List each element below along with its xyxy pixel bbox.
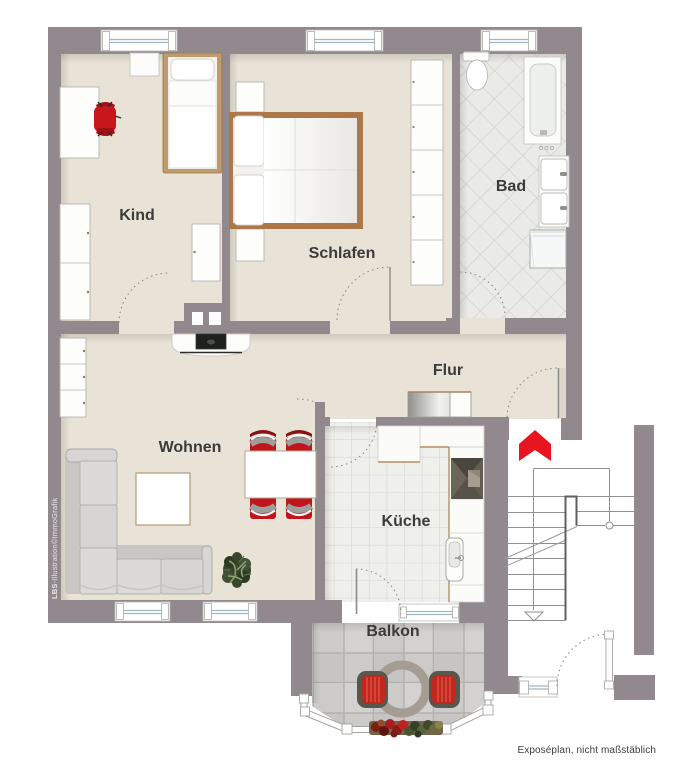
svg-text:Bad: Bad <box>496 178 526 195</box>
svg-text:Küche: Küche <box>382 513 431 530</box>
svg-text:Flur: Flur <box>433 362 463 379</box>
svg-text:Balkon: Balkon <box>366 623 419 640</box>
svg-text:Kind: Kind <box>119 207 155 224</box>
svg-text:Wohnen: Wohnen <box>159 439 222 456</box>
svg-text:LBS-Illustration©ImmoGrafik: LBS-Illustration©ImmoGrafik <box>50 498 59 599</box>
svg-text:Exposéplan, nicht maßstäblich: Exposéplan, nicht maßstäblich <box>517 745 656 756</box>
svg-text:Schlafen: Schlafen <box>309 245 376 262</box>
